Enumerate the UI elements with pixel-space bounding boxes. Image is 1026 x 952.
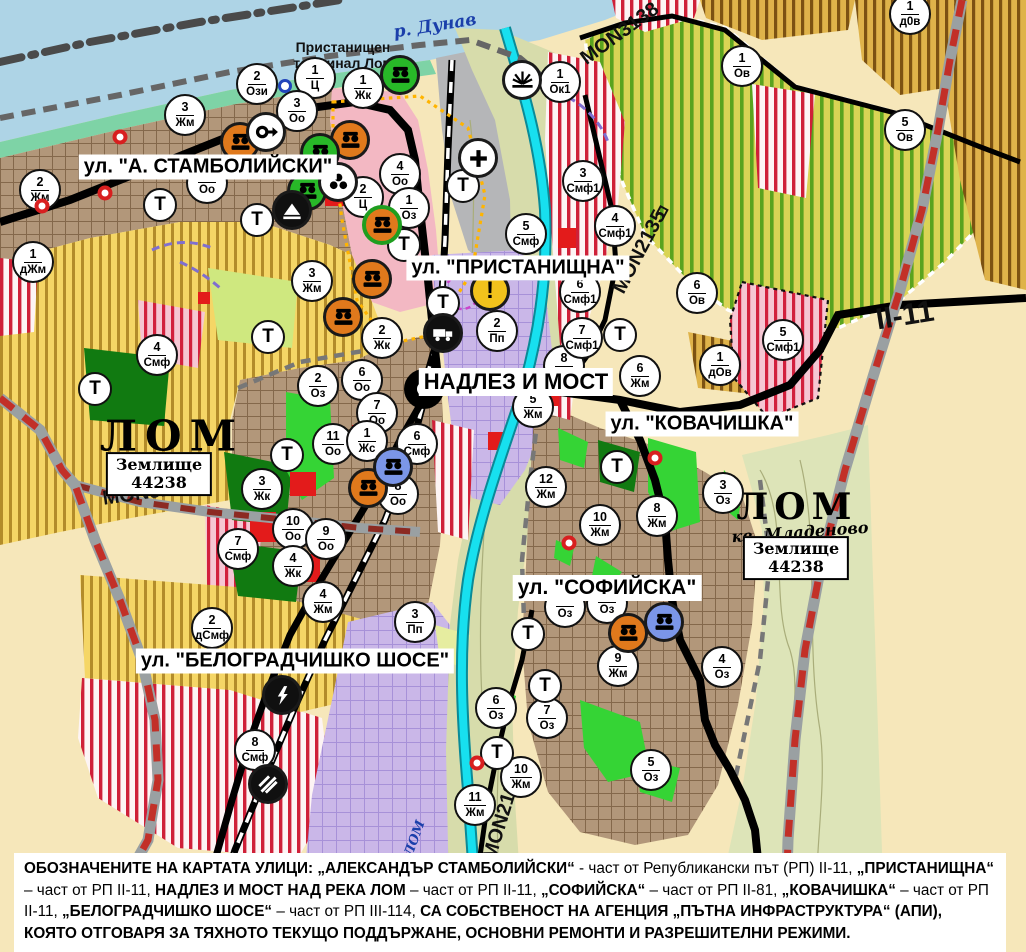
zone-code: Оз [558,607,573,620]
caption-segment: „БЕЛОГРАДЧИШКО ШОСЕ“ [62,903,272,920]
zone-code: Жм [537,488,556,501]
zone-marker-Ов: 1Ов [721,45,763,87]
zone-number: 1 [306,64,324,78]
zone-number: 2 [488,317,506,331]
zone-number: 3 [406,608,424,622]
zone-number: 3 [176,101,194,115]
red-dot-marker [562,536,577,551]
zone-number: 5 [896,116,914,130]
caption-segment: – част от РП II-81, [645,882,781,899]
zoning-map-page: { "map": { "street_labels": [ {"text": "… [0,0,1026,943]
zone-number: 10 [510,763,532,777]
zone-marker-Жм: 12Жм [525,466,567,508]
transformer-marker: Т [143,188,177,222]
zone-code: Жм [303,282,322,295]
zone-marker-Жм: 11Жм [454,784,496,826]
zone-number: 12 [535,473,557,487]
red-dot-marker [35,199,50,214]
zone-marker-Жм: 6Жм [619,355,661,397]
monument-blue-icon [644,602,684,642]
transformer-marker: Т [240,203,274,237]
zone-marker-Смф1: 5Смф1 [762,319,804,361]
zone-code: Ц [311,79,319,92]
zone-number: 6 [353,366,371,380]
zone-number: 2 [373,324,391,338]
transformer-marker: Т [528,669,562,703]
zone-number: 2 [203,614,221,628]
zone-code: Оо [390,495,406,508]
zone-code: Жм [631,377,650,390]
cross-icon [458,138,498,178]
zone-number: 4 [314,588,332,602]
monument-blue-icon [373,447,413,487]
zone-number: 1 [354,74,372,88]
monument-orange-icon [323,297,363,337]
zone-code: Смф1 [563,293,596,306]
zone-marker-Пп: 3Пп [394,601,436,643]
zone-number: 1 [711,351,729,365]
zone-marker-Жк: 1Жк [342,67,384,109]
zone-code: Жм [524,408,543,421]
zone-marker-Жк: 2Жк [361,317,403,359]
fan-icon [502,60,542,100]
zone-number: 4 [284,552,302,566]
zone-marker-Жм: 8Жм [636,495,678,537]
zone-marker-Смф: 5Смф [505,213,547,255]
zone-number: 5 [517,220,535,234]
street-label-sofiyska: ул. "СОФИЙСКА" [513,575,702,601]
street-label-belogradchishko-shose: ул. "БЕЛОГРАДЧИШКО ШОСЕ" [136,649,454,674]
red-dot-marker [470,756,485,771]
zone-code: Ов [897,131,913,144]
zone-number: 2 [309,372,327,386]
zone-code: Жм [314,603,333,616]
zone-number: 5 [774,326,792,340]
zone-number: 4 [148,341,166,355]
caption-segment: – част от РП II-11, [24,882,155,899]
zone-number: 3 [714,479,732,493]
zone-code: Смф [144,356,171,369]
zone-number: 10 [282,515,304,529]
zone-number: 8 [246,736,264,750]
zone-number: 11 [464,791,485,805]
land-parcel-box: Землище 44238 [743,536,849,580]
zone-number: 8 [648,502,666,516]
zone-marker-Оз: 4Оз [701,646,743,688]
zone-code: Жк [374,339,390,352]
zone-number: 5 [642,756,660,770]
zone-code: Ов [689,294,705,307]
zone-marker-Жм: 4Жм [302,581,344,623]
zone-number: 4 [713,653,731,667]
zone-code: Смф [242,751,269,764]
zone-number: 1 [733,52,751,66]
zone-marker-дЖм: 1дЖм [12,241,54,283]
street-label-kovachishka: ул. "КОВАЧИШКА" [606,412,799,437]
zone-marker-Оз: 5Оз [630,749,672,791]
zone-number: 9 [317,525,335,539]
zone-code: Оз [716,494,731,507]
zone-number: 3 [574,167,592,181]
zone-number: 2 [248,70,266,84]
zone-code: Оо [285,530,301,543]
caption-segment: ОБОЗНАЧЕНИТЕ НА КАРТАТА УЛИЦИ: [24,860,317,877]
zone-marker-Смф: 7Смф [217,528,259,570]
zone-marker-Ози: 2Ози [236,63,278,105]
zone-code: Жс [359,442,376,455]
zone-code: Смф [513,235,540,248]
zone-marker-Жм: 3Жм [291,260,333,302]
zone-marker-Пп: 2Пп [476,310,518,352]
zone-number: 7 [573,324,591,338]
red-dot-marker [648,451,663,466]
zone-marker-Оо: 9Оо [305,518,347,560]
transformer-marker: Т [480,736,514,770]
street-label-nadlez-i-most: НАДЛЕЗ И МОСТ [419,368,613,396]
blue-ring-icon [278,79,292,93]
zone-number: 11 [322,430,343,444]
zone-code: Жм [512,778,531,791]
zone-code: Пп [489,332,504,345]
zone-code: Пп [407,623,422,636]
zone-code: Ц [359,198,367,211]
zone-number: 6 [571,278,589,292]
zone-number: 3 [303,267,321,281]
zone-number: 4 [606,212,624,226]
key-icon [246,112,286,152]
street-label-stamboliyski: ул. "А. СТАМБОЛИЙСКИ" [79,155,337,180]
zone-marker-Жм: 10Жм [579,504,621,546]
zone-number: 7 [229,535,247,549]
zone-code: Смф1 [598,227,631,240]
zone-code: Смф1 [766,341,799,354]
zone-marker-Смф1: 7Смф1 [561,317,603,359]
zone-code: Оо [199,183,215,196]
zone-marker-Оз: 6Оз [475,687,517,729]
zone-marker-дСмф: 2дСмф [191,607,233,649]
zone-code: Оо [318,540,334,553]
zone-marker-Ок1: 1Ок1 [539,61,581,103]
transformer-marker: Т [511,617,545,651]
zone-code: Оз [540,719,555,732]
zone-number: 6 [408,430,426,444]
transformer-marker: Т [270,438,304,472]
land-parcel-box: Землище 44238 [106,452,212,496]
caption-segment: „ПРИСТАНИЩНА“ [857,860,994,877]
zone-code: Ов [734,67,750,80]
transformer-marker: Т [603,318,637,352]
zone-code: Оо [392,175,408,188]
zone-marker-Оз: 2Оз [297,365,339,407]
zone-code: Оо [325,445,341,458]
red-dot-marker [98,186,113,201]
zone-marker-дОв: 1дОв [699,344,741,386]
zone-number: 1 [551,68,569,82]
zone-number: 3 [288,97,306,111]
zone-code: Смф1 [565,339,598,352]
zone-number: 10 [589,511,611,525]
zone-number: 6 [688,279,706,293]
zone-code: Оз [489,709,504,722]
zone-code: Жм [466,806,485,819]
zone-number: 3 [253,475,271,489]
caption-segment: „СОФИЙСКА“ [541,882,645,899]
zone-marker-Смф1: 4Смф1 [594,205,636,247]
zone-code: Ози [246,85,268,98]
monument-orange-icon [608,613,648,653]
zone-code: Жм [176,116,195,129]
transformer-marker: Т [251,320,285,354]
zone-number: 1 [358,427,376,441]
zone-code: Смф1 [566,182,599,195]
caption-segment: – част от РП II-11, [406,882,541,899]
zone-code: дСмф [195,629,229,642]
monument-orange-greenring-icon [362,205,402,245]
zone-number: 4 [391,160,409,174]
zone-code: дОв [708,366,731,379]
street-label-pristanishtna: ул. "ПРИСТАНИЩНА" [406,256,629,281]
zone-code: Смф [225,550,252,563]
zone-number: 9 [609,652,627,666]
caption-segment: „АЛЕКСАНДЪР СТАМБОЛИЙСКИ“ [317,860,574,877]
lightning-icon [262,675,302,715]
transformer-marker: Т [600,450,634,484]
zone-number: 6 [487,694,505,708]
zone-code: Оз [311,387,326,400]
zone-number: 6 [631,362,649,376]
monument-green-icon [380,55,420,95]
zone-code: Жк [254,490,270,503]
zone-number: 7 [368,399,386,413]
zone-code: Оо [354,381,370,394]
zone-code: Жм [648,517,667,530]
zone-code: Жм [609,667,628,680]
zone-code: Ок1 [549,83,570,96]
truck-icon [423,313,463,353]
zone-marker-Жк: 4Жк [272,545,314,587]
zone-code: Жк [355,89,371,102]
caption-segment: – част от РП III-114, [272,903,420,920]
caption-segment: НАДЛЕЗ И МОСТ НАД РЕКА ЛОМ [155,882,406,899]
map-caption: ОБОЗНАЧЕНИТЕ НА КАРТАТА УЛИЦИ: „АЛЕКСАНД… [14,853,1006,952]
zone-marker-Оз: 7Оз [526,697,568,739]
red-dot-marker [113,130,128,145]
zone-marker-Жм: 3Жм [164,94,206,136]
zone-code: Жм [591,526,610,539]
zone-code: Оз [600,603,615,616]
zone-number: 1 [901,0,919,14]
zone-code: дЖм [20,263,46,276]
zone-code: Оз [644,771,659,784]
zone-code: Оо [289,112,305,125]
zone-marker-Ов: 5Ов [884,109,926,151]
zone-marker-Оз: 3Оз [702,472,744,514]
caption-segment: „КОВАЧИШКА“ [782,882,896,899]
zone-code: Оз [402,209,417,222]
zone-number: 7 [538,704,556,718]
zone-number: 1 [400,194,418,208]
zone-marker-Смф: 4Смф [136,334,178,376]
caption-segment: - част от Републикански път (РП) II-11, [575,860,857,877]
rail-crossing-icon [248,764,288,804]
zone-marker-Смф1: 3Смф1 [562,160,604,202]
monument-orange-icon [352,259,392,299]
zone-code: Оз [715,668,730,681]
zone-number: 2 [31,176,49,190]
zone-code: Жк [285,567,301,580]
zone-marker-Жк: 3Жк [241,468,283,510]
zone-number: 1 [24,248,42,262]
transformer-marker: Т [78,372,112,406]
arch-icon [272,190,312,230]
zone-marker-Ов: 6Ов [676,272,718,314]
zone-code: д0в [900,15,921,28]
